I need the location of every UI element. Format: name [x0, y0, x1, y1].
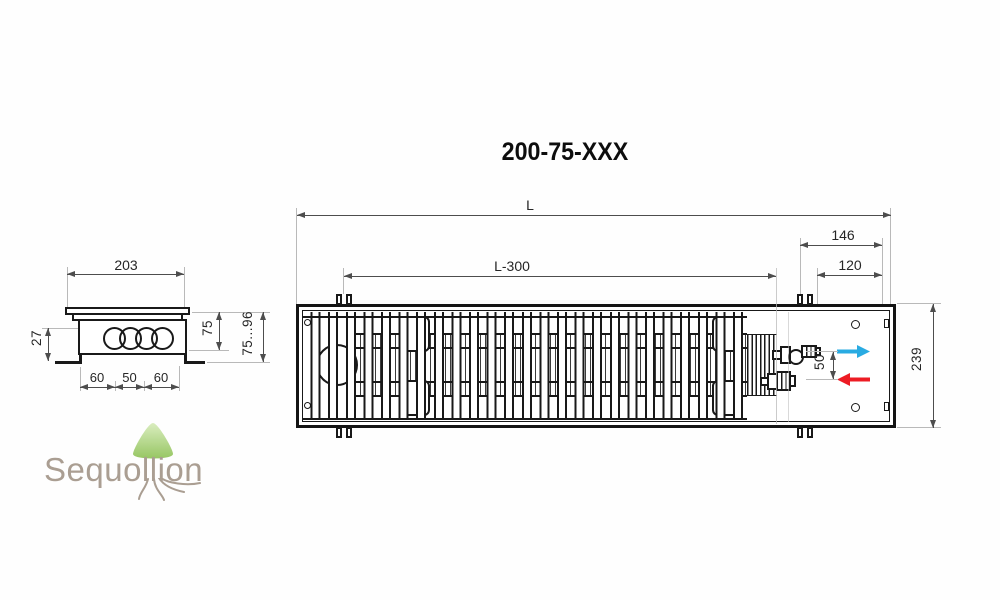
mounting-clip [336, 294, 342, 305]
dim-grille-length-label: L-300 [482, 258, 542, 274]
dim-depth [933, 304, 934, 428]
extension-line [179, 366, 180, 391]
mounting-clip [797, 294, 803, 305]
extension-line [296, 208, 297, 304]
dim-tube-pitch-mid [115, 387, 144, 388]
mounting-clip [346, 294, 352, 305]
extension-line [207, 362, 270, 363]
mounting-clip [807, 294, 813, 305]
dim-length-label: L [505, 197, 555, 213]
extension-line [890, 208, 891, 304]
side-view-foot [184, 361, 205, 364]
mounting-clip [336, 427, 342, 438]
dim-end-inner-label: 120 [823, 257, 877, 273]
inner-frame [302, 310, 890, 422]
mounting-clip [807, 427, 813, 438]
dim-depth-label: 239 [909, 347, 924, 371]
dim-tube-left-label: 60 [82, 370, 112, 385]
drawing-title: 200-75-XXX [430, 138, 700, 167]
dim-casing-height-label: 75 [200, 320, 215, 336]
side-view-foot [55, 361, 82, 364]
tree-roots-icon [138, 478, 210, 502]
extension-line [776, 268, 777, 424]
extension-line [184, 267, 185, 307]
dim-casing-height [219, 312, 220, 350]
extension-line [343, 268, 344, 294]
dim-end-inner [817, 275, 882, 276]
dim-tube-right-label: 60 [146, 370, 176, 385]
dim-tube-pitch-right [144, 387, 179, 388]
dim-pipe-spacing [833, 352, 834, 379]
dim-total-height [263, 312, 264, 362]
extension-line [192, 312, 270, 313]
dim-pipe-spacing-label: 50 [812, 354, 827, 370]
extension-line [882, 238, 883, 304]
dim-side-offset [48, 328, 49, 361]
dim-tube-pitch-left [80, 387, 115, 388]
dim-side-width-label: 203 [99, 257, 153, 273]
dim-end-section-label: 146 [816, 227, 870, 243]
extension-line [189, 350, 229, 351]
dim-side-width [67, 274, 184, 275]
dim-side-offset-label: 27 [29, 330, 44, 346]
tube-circle [151, 327, 174, 350]
dim-total-height-label: 75...96 [240, 311, 255, 356]
extension-line [806, 379, 838, 380]
dim-grille-length [344, 276, 776, 277]
technical-drawing-canvas: 200-75-XXX 203 27 60 50 [0, 0, 1000, 600]
dim-length [297, 215, 891, 216]
extension-line [788, 312, 789, 422]
mounting-clip [797, 427, 803, 438]
mounting-clip [346, 427, 352, 438]
dim-tube-mid-label: 50 [115, 370, 144, 385]
dim-end-section [800, 245, 882, 246]
